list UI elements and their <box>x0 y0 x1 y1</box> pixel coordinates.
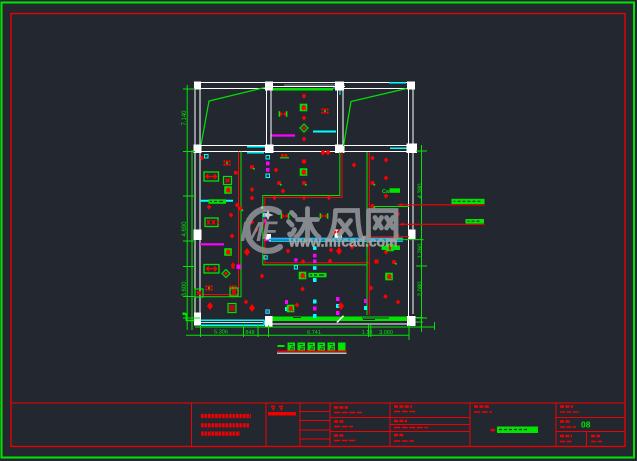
svg-text:08: 08 <box>581 420 591 430</box>
svg-text:6.741: 6.741 <box>307 330 321 336</box>
svg-text:7.140: 7.140 <box>182 110 188 126</box>
svg-text:1.260: 1.260 <box>418 243 424 259</box>
svg-text:M: M <box>240 216 264 247</box>
svg-text:2.080: 2.080 <box>418 281 424 297</box>
svg-text:1.10: 1.10 <box>362 330 373 336</box>
svg-text:3.080: 3.080 <box>379 330 393 336</box>
svg-text:www.mfcad.com: www.mfcad.com <box>288 234 397 249</box>
svg-text:3.600: 3.600 <box>182 281 188 297</box>
svg-text:4.690: 4.690 <box>182 221 188 237</box>
svg-text:F: F <box>262 217 278 245</box>
svg-text:848: 848 <box>245 330 254 336</box>
svg-text:5.306: 5.306 <box>214 330 228 336</box>
svg-text:4.380: 4.380 <box>418 183 424 199</box>
svg-text:Ca: Ca <box>382 189 390 195</box>
